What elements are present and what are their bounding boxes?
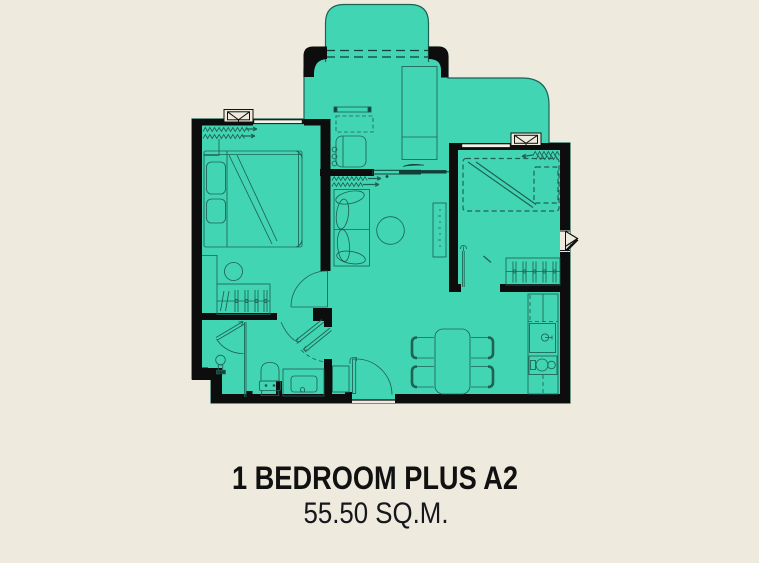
svg-text:55.50 SQ.M.: 55.50 SQ.M. [304, 497, 449, 530]
svg-text:1 BEDROOM PLUS A2: 1 BEDROOM PLUS A2 [232, 460, 518, 496]
